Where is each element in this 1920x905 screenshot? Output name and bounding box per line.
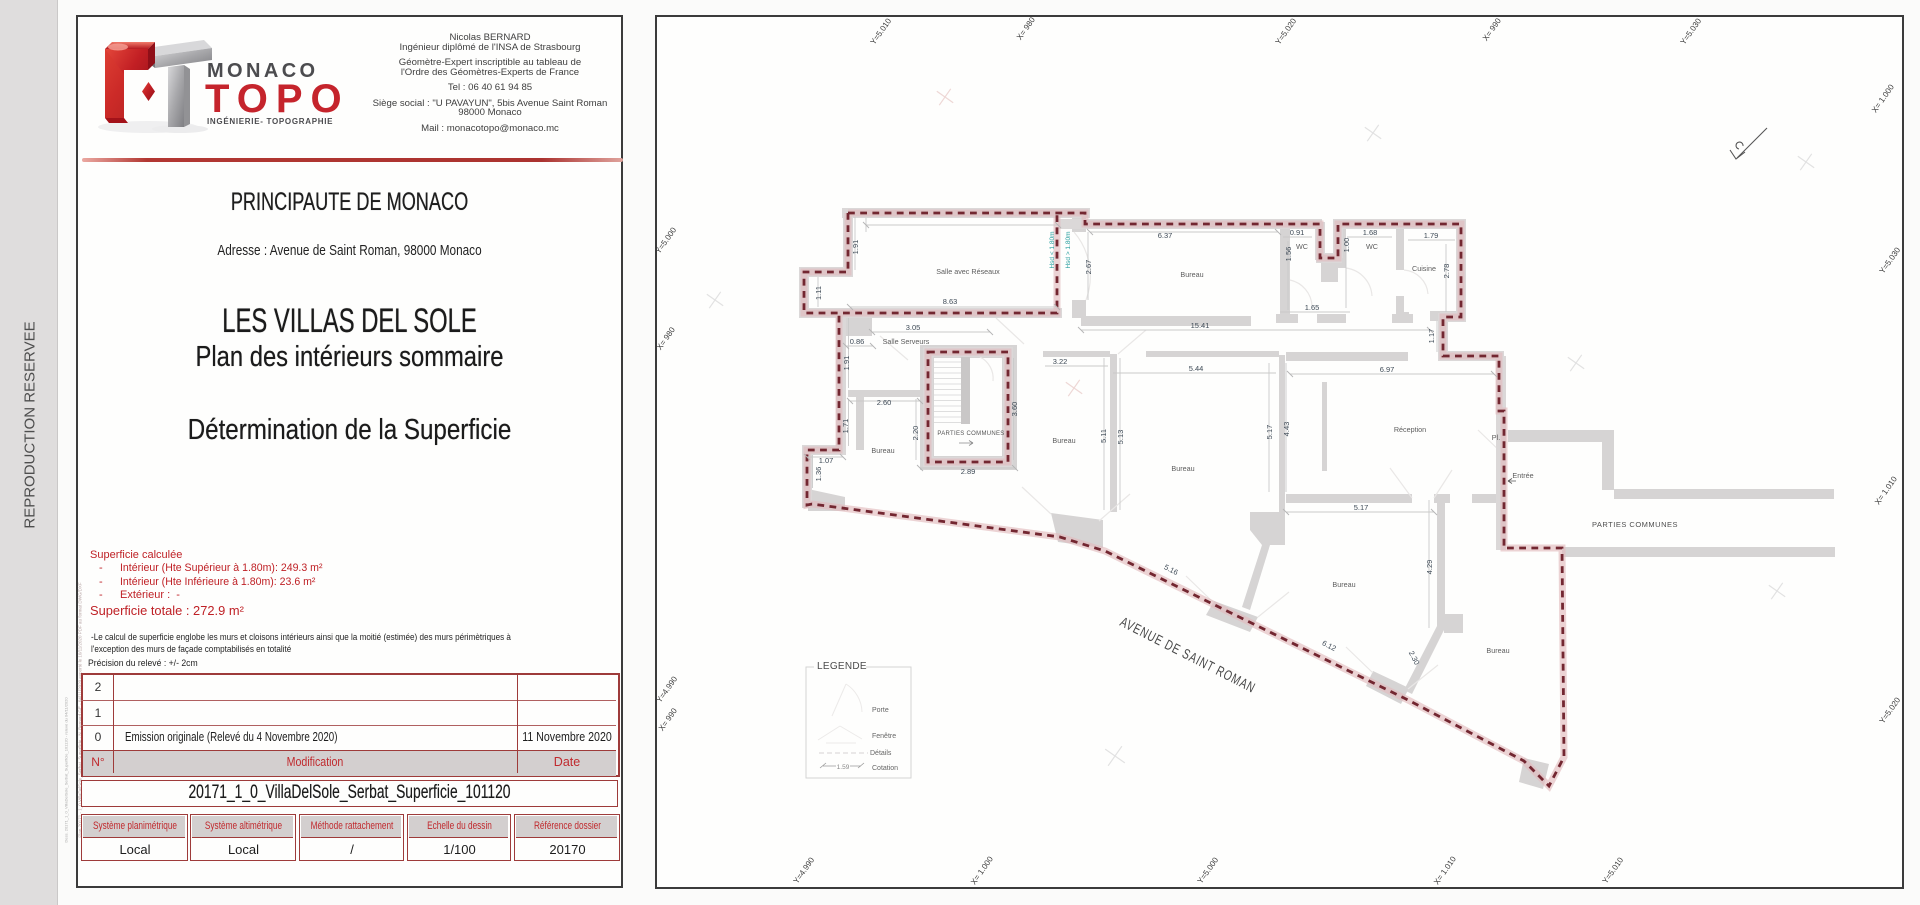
svg-text:1.07: 1.07: [819, 456, 834, 465]
svg-text:2.78: 2.78: [1442, 264, 1451, 279]
svg-text:1.91: 1.91: [851, 240, 860, 255]
svg-text:Pl.: Pl.: [1492, 433, 1500, 442]
svg-text:INGÉNIERIE- TOPOGRAPHIE: INGÉNIERIE- TOPOGRAPHIE: [207, 117, 333, 126]
svg-text:5.11: 5.11: [1099, 429, 1108, 443]
svg-text:Y=5.010: Y=5.010: [1601, 855, 1626, 885]
svg-text:PARTIES COMMUNES: PARTIES COMMUNES: [1592, 520, 1678, 529]
svg-text:TOPO: TOPO: [205, 77, 350, 121]
svg-text:5.44: 5.44: [1189, 364, 1204, 373]
svg-text:X= 980: X= 980: [1015, 17, 1037, 42]
svg-text:X= 1.000: X= 1.000: [1870, 82, 1896, 114]
svg-text:X= 990: X= 990: [657, 706, 679, 733]
svg-text:6.37: 6.37: [1158, 231, 1173, 240]
svg-text:Bureau: Bureau: [1486, 646, 1509, 655]
svg-text:Hsd < 1.80m: Hsd < 1.80m: [1049, 231, 1056, 268]
svg-text:Y=5.000: Y=5.000: [657, 225, 679, 255]
svg-text:Y=5.000: Y=5.000: [1196, 855, 1221, 885]
svg-text:LEGENDE: LEGENDE: [817, 661, 867, 672]
svg-text:1.59: 1.59: [837, 764, 850, 771]
svg-text:Réception: Réception: [1394, 425, 1426, 434]
svg-text:Y=5.030: Y=5.030: [1679, 17, 1704, 46]
svg-text:Porte: Porte: [872, 707, 889, 714]
svg-text:Y=5.020: Y=5.020: [1878, 695, 1902, 725]
svg-text:Y=5.020: Y=5.020: [1274, 17, 1299, 46]
svg-text:3.22: 3.22: [1053, 357, 1068, 366]
svg-text:1.00: 1.00: [1342, 238, 1351, 253]
svg-text:15.41: 15.41: [1191, 321, 1210, 330]
svg-text:1.65: 1.65: [1305, 303, 1320, 312]
svg-text:Cotation: Cotation: [872, 765, 898, 772]
svg-text:1.68: 1.68: [1363, 228, 1378, 237]
svg-text:5.16: 5.16: [1163, 562, 1180, 577]
svg-text:0.91: 0.91: [1290, 228, 1305, 237]
svg-text:1.71: 1.71: [841, 419, 850, 434]
svg-text:1.56: 1.56: [1284, 247, 1293, 262]
svg-text:X= 1.010: X= 1.010: [1873, 474, 1899, 506]
svg-text:PARTIES COMMUNES: PARTIES COMMUNES: [937, 431, 1004, 437]
svg-text:Hsd > 1.80m: Hsd > 1.80m: [1065, 231, 1072, 268]
svg-text:Bureau: Bureau: [1332, 580, 1355, 589]
svg-text:Y=4.990: Y=4.990: [657, 674, 680, 704]
svg-text:5.17: 5.17: [1265, 425, 1274, 440]
svg-text:2.60: 2.60: [877, 398, 892, 407]
svg-text:X= 1.000: X= 1.000: [969, 854, 995, 886]
svg-text:1.17: 1.17: [1427, 329, 1436, 344]
svg-text:0.86: 0.86: [850, 337, 865, 346]
svg-text:Bureau: Bureau: [1180, 270, 1203, 279]
svg-text:Détails: Détails: [870, 750, 892, 757]
svg-text:3.60: 3.60: [1010, 402, 1019, 417]
svg-text:1.79: 1.79: [1424, 231, 1439, 240]
svg-text:Salle avec Réseaux: Salle avec Réseaux: [936, 267, 1000, 276]
svg-text:3.05: 3.05: [906, 323, 921, 332]
svg-text:6.12: 6.12: [1321, 638, 1338, 653]
svg-text:X= 1.010: X= 1.010: [1432, 854, 1458, 886]
svg-text:Entrée: Entrée: [1512, 471, 1533, 480]
svg-text:Bureau: Bureau: [1052, 436, 1075, 445]
svg-text:5.17: 5.17: [1354, 503, 1369, 512]
svg-text:Y=4.990: Y=4.990: [792, 855, 817, 885]
svg-text:Y=5.030: Y=5.030: [1878, 245, 1902, 275]
svg-text:4.29: 4.29: [1425, 560, 1434, 575]
svg-text:1.91: 1.91: [842, 356, 851, 371]
svg-text:6.97: 6.97: [1380, 365, 1395, 374]
svg-text:1.36: 1.36: [814, 467, 823, 482]
svg-text:Fenêtre: Fenêtre: [872, 733, 896, 740]
svg-text:Y=5.010: Y=5.010: [869, 17, 894, 46]
svg-text:WC: WC: [1366, 242, 1378, 251]
svg-text:8.63: 8.63: [943, 297, 958, 306]
svg-text:WC: WC: [1296, 242, 1308, 251]
svg-text:Salle Serveurs: Salle Serveurs: [883, 337, 930, 346]
svg-text:5.13: 5.13: [1116, 430, 1125, 445]
svg-text:X= 990: X= 990: [1481, 17, 1503, 43]
svg-text:4.43: 4.43: [1282, 422, 1291, 437]
svg-text:2.20: 2.20: [911, 426, 920, 441]
svg-text:2.89: 2.89: [961, 467, 976, 476]
svg-text:X= 980: X= 980: [657, 325, 677, 352]
svg-text:Bureau: Bureau: [1171, 464, 1194, 473]
svg-text:Bureau: Bureau: [871, 446, 894, 455]
svg-text:Cuisine: Cuisine: [1412, 264, 1436, 273]
svg-text:1.11: 1.11: [814, 286, 823, 300]
svg-text:2.67: 2.67: [1084, 260, 1093, 275]
